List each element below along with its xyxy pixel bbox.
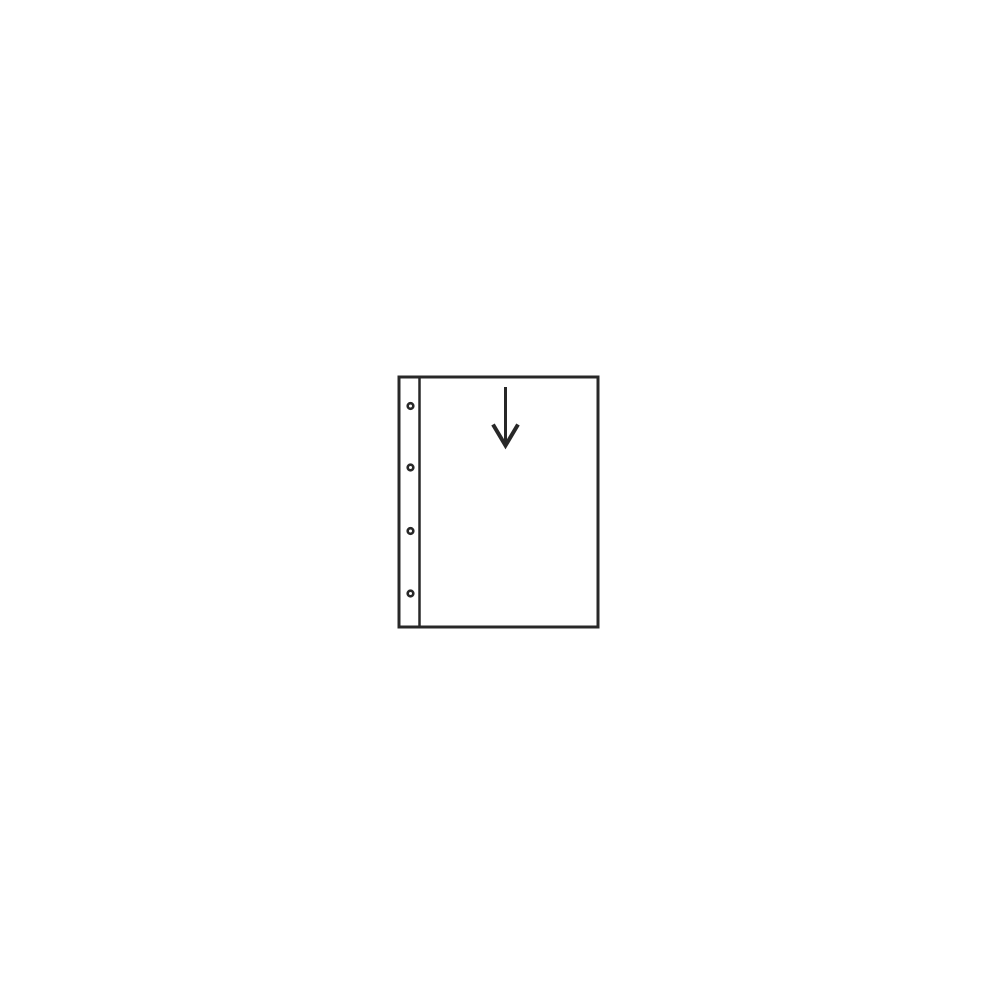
page-outline [399, 377, 598, 627]
binder-page-diagram [0, 0, 1000, 1000]
diagram-canvas [0, 0, 1000, 1000]
